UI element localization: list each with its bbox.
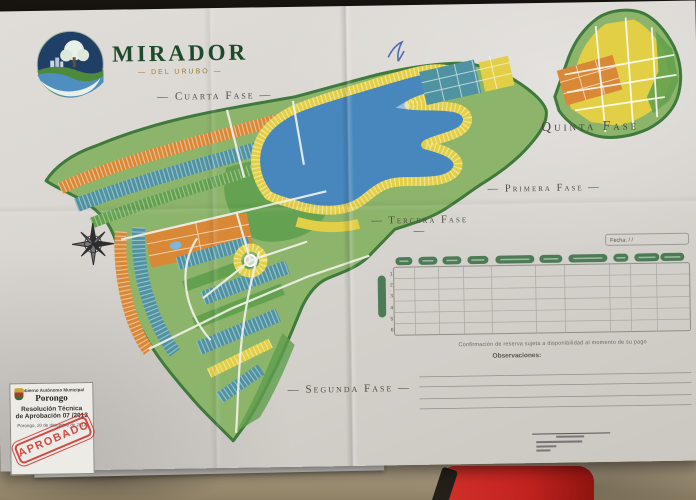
row-number: 6 [386,327,393,333]
row-number: 2 [386,282,393,288]
date-field: Fecha: / / [605,233,689,246]
label-quinta-fase: Quinta Fase [535,117,645,135]
label-tercera-fase: — Tercera Fase — [365,214,475,238]
logo-emblem-icon [36,30,105,99]
signature-block [532,433,610,452]
label-primera-fase: — Primera Fase — [484,182,604,195]
row-number: 5 [386,316,393,322]
red-cloth-object [444,466,594,500]
row-number: 4 [386,305,393,311]
brand-title: MIRADOR [112,40,248,68]
checkmark-pen-mark [388,42,404,61]
brand-logo: MIRADOR — DEL URUBO — [36,28,249,99]
label-cuarta-fase: — Cuarta Fase — [145,89,285,103]
municipal-crest-icon [14,388,23,400]
brand-subtitle: — DEL URUBO — [112,68,248,77]
observation-lines [419,373,691,409]
approval-box: Gobierno Autónomo Municipal Porongo Reso… [9,382,94,475]
label-segunda-fase: — Segunda Fase — [284,382,414,396]
plan-sheet: MIRADOR — DEL URUBO — — Cuarta Fase — Qu… [0,1,696,472]
row-number: 3 [386,293,393,299]
row-number: 1 [386,271,393,277]
table-grid [393,263,690,336]
table-column-header-pills [377,253,685,318]
photo-of-masterplan-sheet: MIRADOR — DEL URUBO — — Cuarta Fase — Qu… [0,0,696,500]
compass-icon [72,223,115,266]
